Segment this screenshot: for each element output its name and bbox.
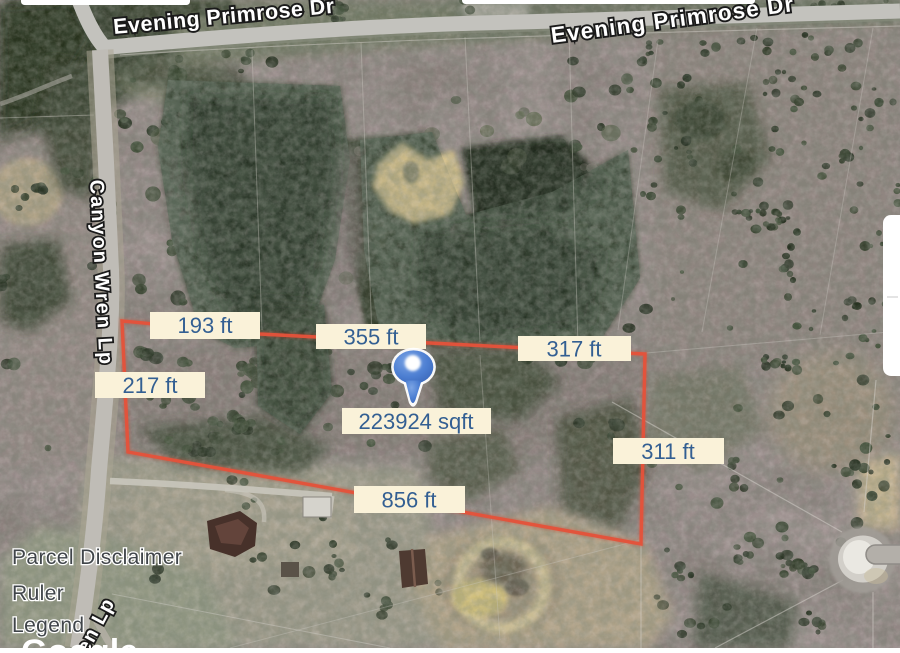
svg-text:355 ft: 355 ft xyxy=(343,325,398,350)
svg-text:317 ft: 317 ft xyxy=(546,337,601,362)
svg-text:193 ft: 193 ft xyxy=(177,313,232,338)
svg-text:856 ft: 856 ft xyxy=(381,488,436,513)
svg-text:217 ft: 217 ft xyxy=(122,373,177,398)
svg-text:Parcel Disclaimer: Parcel Disclaimer xyxy=(12,546,182,569)
svg-text:Ruler: Ruler xyxy=(12,582,64,605)
svg-text:223924 sqft: 223924 sqft xyxy=(359,409,474,434)
svg-text:Google: Google xyxy=(21,633,138,648)
svg-text:311 ft: 311 ft xyxy=(641,439,694,464)
